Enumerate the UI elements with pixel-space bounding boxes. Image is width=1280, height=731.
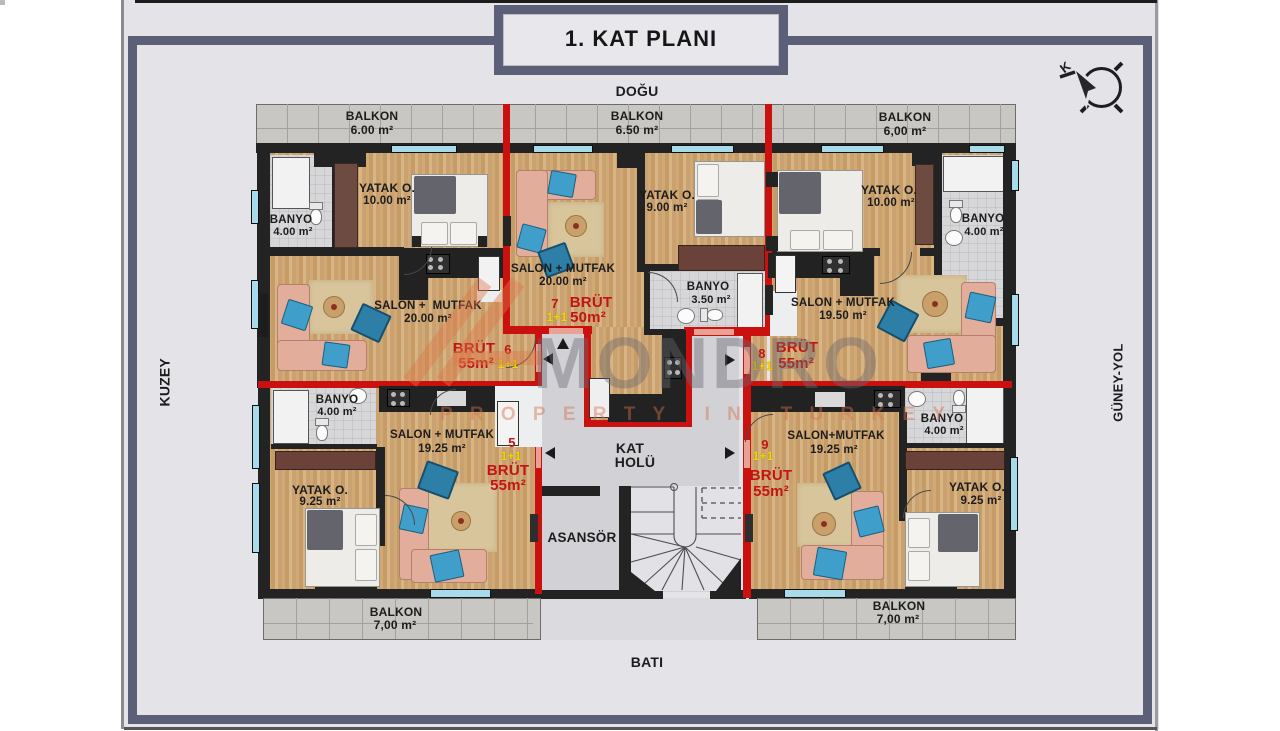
svg-text:MONDRO: MONDRO <box>533 324 879 404</box>
svg-text:PROPERTY IN TURKEY: PROPERTY IN TURKEY <box>440 404 945 425</box>
